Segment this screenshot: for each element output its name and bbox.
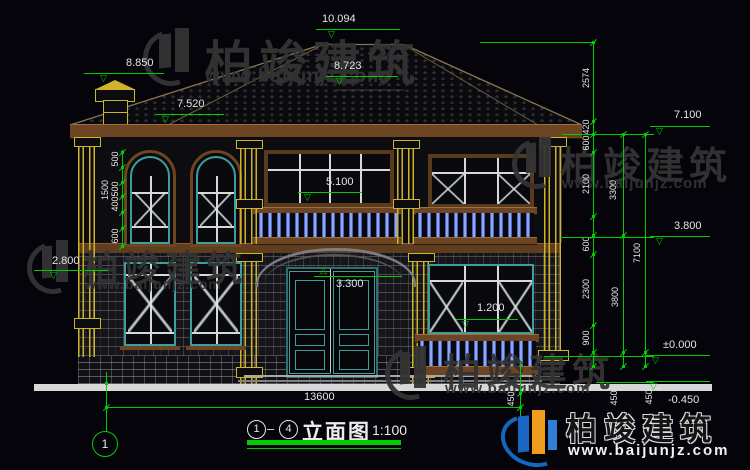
balcony-balustrade — [257, 207, 397, 245]
brand-logo-tower — [518, 415, 529, 452]
mullion — [464, 158, 466, 204]
watermark-url-text: www.baijunjz.com — [85, 276, 222, 292]
watermark-logo-icon — [400, 351, 410, 384]
window-opening-mark — [432, 174, 464, 204]
arched-window-1-frame — [130, 156, 170, 244]
watermark-logo-icon — [526, 142, 536, 173]
arched-window-2-frame — [196, 156, 236, 244]
juliet-balustrade — [416, 207, 534, 245]
entry-door — [286, 267, 378, 378]
window-opening-mark — [430, 282, 463, 332]
brand-logo-footer: 柏竣建筑 www.baijunjz.com — [498, 402, 750, 468]
watermark-url-text: www.baijunjz.com — [562, 175, 707, 192]
title-underline-bar — [247, 440, 401, 445]
window-sill — [120, 346, 180, 350]
juliet-rail-bottom — [413, 237, 537, 245]
watermark-right: 柏竣建筑 www.baijunjz.com — [512, 133, 750, 195]
mullion — [360, 154, 362, 203]
door-leaf-right — [333, 271, 375, 374]
mullion — [268, 169, 390, 171]
door-panel — [295, 350, 325, 370]
door-panel — [339, 350, 369, 370]
pilaster-2f-right — [397, 140, 414, 244]
arched-window-2 — [190, 150, 242, 247]
grid-ref-circle-start: 1 — [247, 420, 266, 439]
grid-bubble-1: 1 — [92, 431, 118, 457]
pilaster-capital — [236, 140, 263, 149]
mullion — [299, 154, 301, 203]
mullion — [192, 332, 240, 334]
pilaster-capital — [393, 140, 420, 149]
door-panel — [339, 280, 369, 330]
mullion — [132, 226, 168, 228]
window-glazing-x — [200, 192, 232, 226]
window-glazing-x — [134, 192, 166, 226]
pilaster-capital — [74, 318, 101, 329]
watermark-logo-icon — [42, 245, 52, 278]
chimney-band — [104, 112, 127, 113]
watermark-bottom-center: 柏竣建筑 www.baijunjz.com — [385, 340, 625, 398]
grid-ref-circle-end: 4 — [279, 420, 298, 439]
watermark-url-text: www.baijunjz.com — [445, 380, 590, 397]
chimney-peak — [96, 80, 134, 89]
watermark-logo-icon — [159, 33, 171, 68]
first-floor-right-window — [428, 264, 534, 334]
mullion — [464, 266, 466, 332]
balcony-balusters — [257, 213, 397, 239]
pilaster-2f-left — [240, 140, 257, 244]
door-panel — [295, 334, 325, 346]
juliet-balusters — [416, 213, 534, 239]
arched-window-1 — [124, 150, 176, 247]
pilaster-capital — [408, 253, 435, 262]
door-panel — [339, 334, 369, 346]
pilaster-base — [393, 199, 420, 209]
mullion — [329, 154, 331, 203]
balcony-rail-bottom — [253, 237, 401, 245]
drawing-scale-text: 1:100 — [372, 422, 407, 438]
watermark-logo-icon — [134, 21, 208, 95]
watermark-logo-icon — [539, 137, 551, 177]
window-opening-mark — [499, 282, 532, 332]
door-meeting-stile — [330, 269, 331, 372]
watermark-top: 柏竣建筑 www.baijunjz.com — [143, 20, 563, 90]
door-leaf-left — [289, 271, 331, 374]
watermark-url-text: www.baijunjz.com — [205, 66, 385, 88]
brand-logo-url: www.baijunjz.com — [568, 442, 729, 459]
watermark-logo-icon — [175, 28, 189, 72]
window-sill — [186, 346, 246, 350]
grid-ref-dash: – — [267, 421, 274, 436]
title-underline-thin — [247, 448, 401, 449]
watermark-left: 柏竣建筑 www.baijunjz.com — [27, 236, 267, 294]
second-floor-center-window — [264, 150, 394, 207]
brand-logo-tower — [532, 410, 545, 454]
door-panel — [295, 280, 325, 330]
mullion — [198, 226, 234, 228]
brand-logo-tower — [548, 420, 557, 450]
watermark-logo-icon — [414, 346, 426, 388]
pilaster-capital — [74, 137, 101, 147]
watermark-logo-icon — [56, 240, 68, 282]
cad-canvas: 柏竣建筑 www.baijunjz.com 柏竣建筑 www.baijunjz.… — [0, 0, 750, 470]
watermark-logo-icon — [18, 233, 87, 302]
pilaster-base — [236, 199, 263, 209]
mullion — [126, 332, 174, 334]
